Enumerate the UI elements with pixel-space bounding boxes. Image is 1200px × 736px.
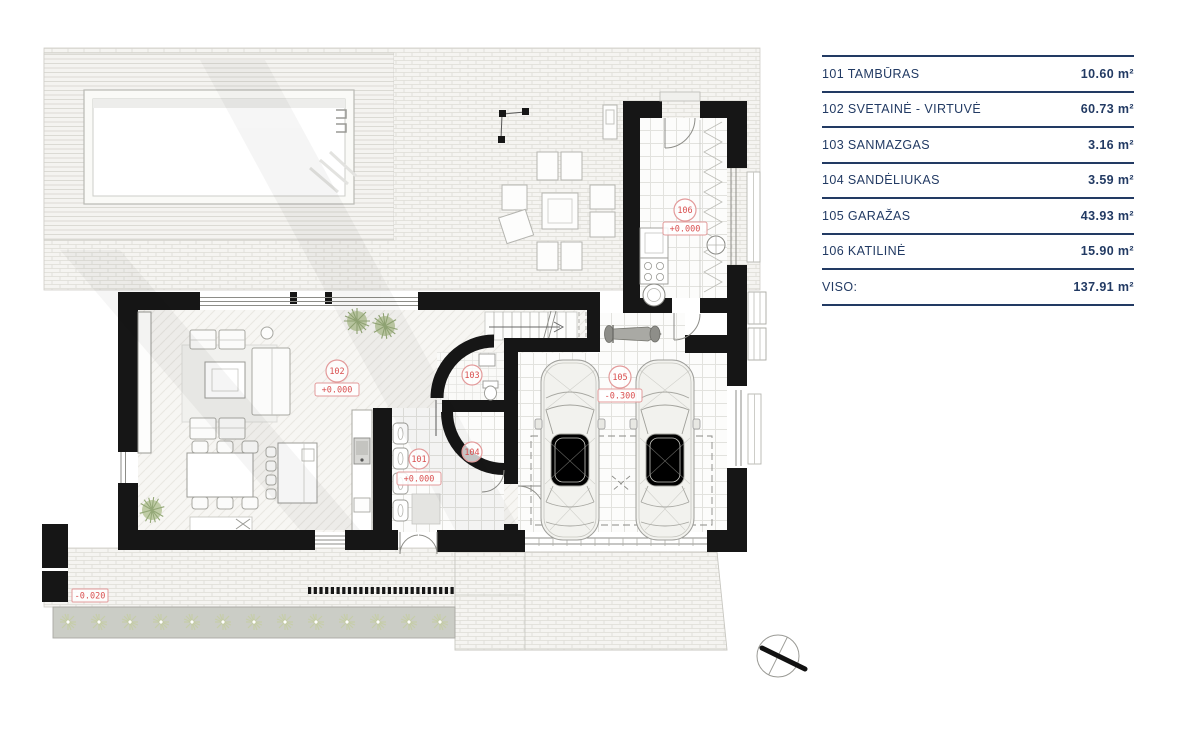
room-name: 104 SANDĖLIUKAS [822,173,940,187]
room-area: 3.16 m² [1088,138,1134,152]
svg-text:+0.000: +0.000 [322,386,353,396]
car-1 [535,360,605,540]
room-name: 105 GARAŽAS [822,209,910,223]
water-heater [707,236,725,254]
legend-row: 104 SANDĖLIUKAS 3.59 m² [822,164,1134,200]
compass-icon [757,635,805,677]
svg-text:106: 106 [677,206,692,216]
ground-elevation-label: -0.020 [72,589,108,602]
room-area: 10.60 m² [1081,67,1134,81]
boiler [643,284,665,306]
floor-plan-svg: 102 +0.000 101 +0.000 103 104 105 [0,0,820,736]
side-table [261,327,273,339]
stove [640,258,668,284]
svg-text:-0.300: -0.300 [605,392,636,402]
room-area: 15.90 m² [1081,244,1134,258]
svg-text:105: 105 [612,373,627,383]
motorcycle [605,325,662,343]
toilet [483,381,498,400]
svg-text:+0.000: +0.000 [404,475,435,485]
legend-row: 102 SVETAINĖ - VIRTUVĖ 60.73 m² [822,93,1134,129]
garden-wall [42,524,68,602]
svg-text:+0.000: +0.000 [670,225,701,235]
floor-plan-sheet: 102 +0.000 101 +0.000 103 104 105 [0,0,1200,736]
svg-text:103: 103 [464,371,479,381]
legend-total-row: VISO: 137.91 m² [822,270,1134,306]
room-name: 106 KATILINĖ [822,244,906,258]
room-area: 3.59 m² [1088,173,1134,187]
bath-sink [479,354,495,366]
svg-text:104: 104 [464,448,479,458]
walkway [394,53,411,240]
room-label-104: 104 [462,442,482,462]
legend-row: 106 KATILINĖ 15.90 m² [822,235,1134,271]
total-label: VISO: [822,280,857,294]
svg-text:102: 102 [329,367,344,377]
svg-text:-0.020: -0.020 [75,592,106,602]
room-area: 60.73 m² [1081,102,1134,116]
legend-row: 103 SANMAZGAS 3.16 m² [822,128,1134,164]
legend-table: 101 TAMBŪRAS 10.60 m² 102 SVETAINĖ - VIR… [822,55,1134,306]
flower-bed [53,607,455,638]
kitchen-counter [352,410,372,532]
legend-row: 101 TAMBŪRAS 10.60 m² [822,57,1134,93]
room-name: 103 SANMAZGAS [822,138,930,152]
driveway [455,552,727,650]
room-name: 102 SVETAINĖ - VIRTUVĖ [822,102,981,116]
room-name: 101 TAMBŪRAS [822,67,919,81]
svg-text:101: 101 [411,455,426,465]
entry-bench [190,517,252,531]
room-area: 43.93 m² [1081,209,1134,223]
legend-row: 105 GARAŽAS 43.93 m² [822,199,1134,235]
floor-plan: 102 +0.000 101 +0.000 103 104 105 [0,0,820,736]
entry-mat [412,494,440,524]
room-label-103: 103 [462,365,482,385]
total-area: 137.91 m² [1073,280,1134,294]
exterior-steps [748,292,766,360]
car-2 [630,360,700,540]
staircase [485,311,593,341]
